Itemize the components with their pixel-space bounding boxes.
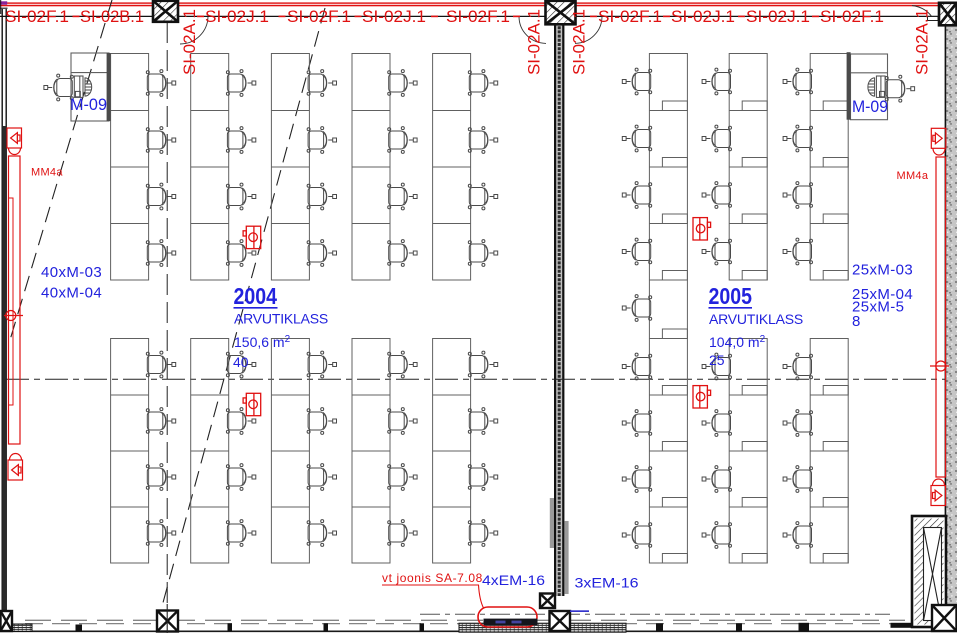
svg-text:SI-02J.1: SI-02J.1 (671, 8, 735, 26)
svg-text:SI-02F.1: SI-02F.1 (287, 8, 351, 26)
svg-text:25: 25 (709, 352, 725, 368)
svg-text:40xM-04: 40xM-04 (41, 285, 102, 302)
svg-text:8: 8 (852, 313, 860, 330)
svg-text:SI-02J.1: SI-02J.1 (205, 8, 269, 26)
svg-text:150,6 m2: 150,6 m2 (234, 334, 291, 350)
svg-text:MM4a: MM4a (31, 167, 63, 179)
svg-text:SI-02A.1: SI-02A.1 (181, 9, 199, 75)
svg-text:M-09: M-09 (852, 97, 888, 116)
svg-text:SI-02F.1: SI-02F.1 (598, 8, 662, 26)
svg-text:SI-02B.1: SI-02B.1 (80, 8, 144, 26)
svg-text:SI-02J.1: SI-02J.1 (746, 8, 810, 26)
svg-text:SI-02A.1: SI-02A.1 (914, 9, 932, 75)
svg-text:M-09: M-09 (70, 95, 107, 114)
svg-text:MM4a: MM4a (897, 170, 929, 182)
svg-text:SI-02F.1: SI-02F.1 (5, 8, 69, 26)
svg-text:SI-02F.1: SI-02F.1 (820, 8, 884, 26)
svg-text:4xEM-16: 4xEM-16 (482, 572, 545, 588)
svg-text:104,0 m2: 104,0 m2 (709, 334, 766, 350)
svg-text:SI-02A.1: SI-02A.1 (571, 9, 589, 75)
svg-text:40xM-03: 40xM-03 (41, 264, 102, 281)
svg-text:vt joonis SA-7.08: vt joonis SA-7.08 (382, 571, 483, 585)
svg-text:ARVUTIKLASS: ARVUTIKLASS (234, 311, 328, 327)
svg-text:2004: 2004 (234, 283, 278, 309)
svg-text:25xM-03: 25xM-03 (852, 262, 913, 279)
svg-text:40: 40 (233, 354, 249, 370)
svg-text:3xEM-16: 3xEM-16 (575, 575, 639, 591)
svg-text:2005: 2005 (709, 283, 753, 309)
svg-text:SI-02F.1: SI-02F.1 (446, 8, 510, 26)
svg-text:ARVUTIKLASS: ARVUTIKLASS (709, 311, 803, 327)
svg-text:SI-02A.1: SI-02A.1 (526, 9, 544, 75)
svg-text:SI-02J.1: SI-02J.1 (362, 8, 426, 26)
